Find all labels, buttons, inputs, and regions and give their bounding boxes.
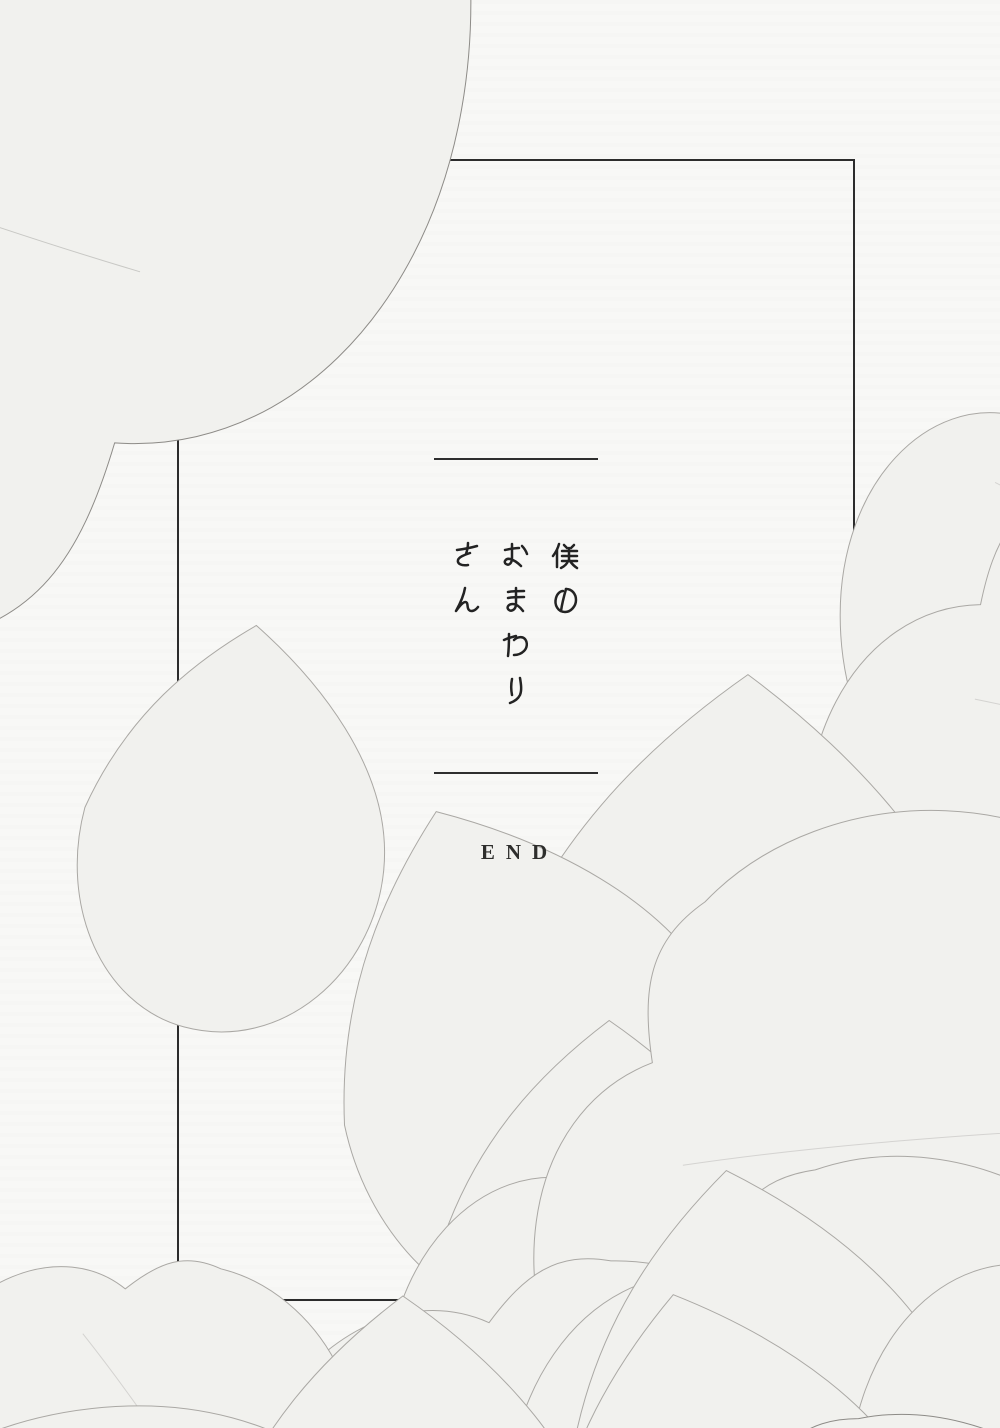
title-column xyxy=(549,540,581,617)
title-rule-top xyxy=(434,458,598,460)
sakura-petal xyxy=(840,346,1000,861)
title-column xyxy=(500,540,532,707)
page-frame-border xyxy=(177,159,855,1301)
title-column xyxy=(451,540,483,617)
title-char xyxy=(451,585,483,617)
end-label: END xyxy=(424,840,604,865)
sakura-petal xyxy=(0,1374,544,1428)
title-char xyxy=(549,585,581,617)
title-char xyxy=(500,585,532,617)
title-rule-bottom xyxy=(434,772,598,774)
manga-end-page: END xyxy=(0,0,1000,1428)
title-char xyxy=(451,540,483,572)
title-char xyxy=(500,630,532,662)
sakura-petal xyxy=(848,1190,1000,1428)
sakura-petal xyxy=(950,1325,1000,1428)
series-title-vertical xyxy=(451,540,581,707)
title-char xyxy=(549,540,581,572)
sakura-petal xyxy=(530,1414,1000,1428)
title-char xyxy=(500,540,532,572)
title-char xyxy=(500,675,532,707)
